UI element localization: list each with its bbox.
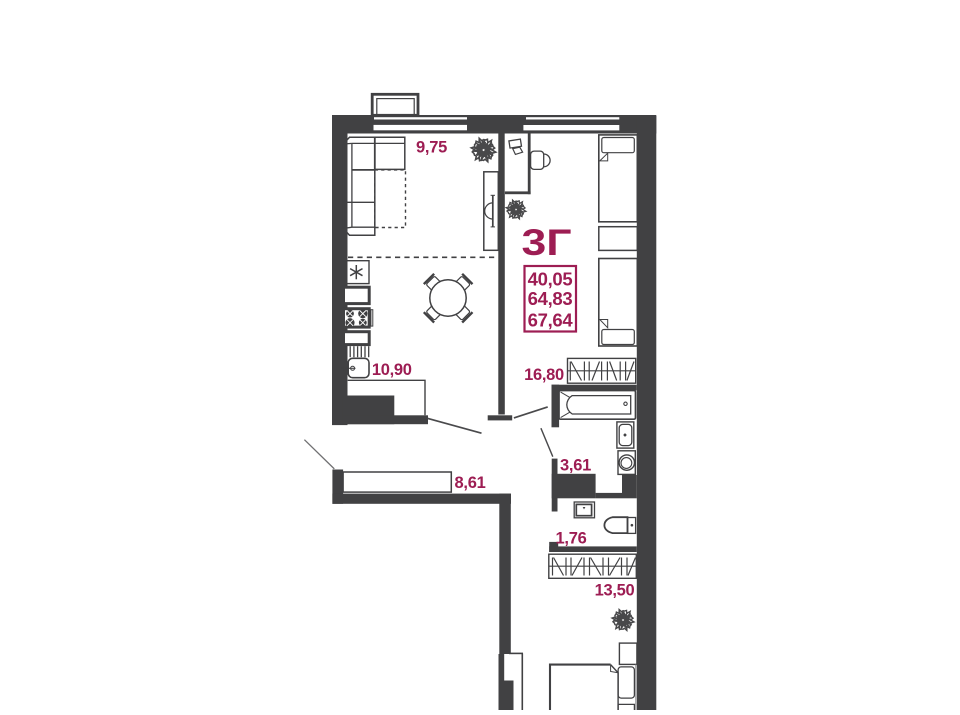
svg-text:3Г: 3Г bbox=[522, 222, 572, 263]
svg-text:8,61: 8,61 bbox=[455, 474, 486, 492]
svg-text:9,75: 9,75 bbox=[416, 138, 447, 156]
svg-text:1,76: 1,76 bbox=[556, 530, 587, 548]
svg-text:67,64: 67,64 bbox=[528, 310, 574, 331]
svg-text:13,50: 13,50 bbox=[595, 582, 635, 600]
svg-text:40,05: 40,05 bbox=[528, 269, 573, 290]
svg-text:16,80: 16,80 bbox=[524, 366, 564, 384]
svg-text:64,83: 64,83 bbox=[528, 288, 573, 309]
svg-text:10,90: 10,90 bbox=[372, 361, 412, 379]
svg-text:3,61: 3,61 bbox=[560, 457, 591, 475]
